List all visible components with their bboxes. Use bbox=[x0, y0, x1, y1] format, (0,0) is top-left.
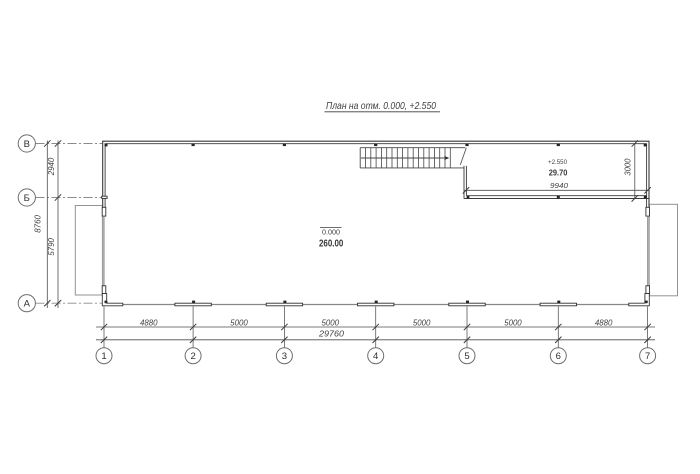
svg-text:4880: 4880 bbox=[140, 317, 158, 327]
svg-text:5000: 5000 bbox=[504, 317, 522, 327]
svg-text:А: А bbox=[24, 299, 31, 310]
svg-text:+2.550: +2.550 bbox=[548, 159, 568, 166]
svg-text:1: 1 bbox=[101, 351, 106, 362]
svg-text:4: 4 bbox=[373, 351, 378, 362]
svg-text:7: 7 bbox=[645, 351, 650, 362]
svg-text:29760: 29760 bbox=[318, 328, 344, 338]
svg-text:5000: 5000 bbox=[413, 317, 431, 327]
svg-text:4880: 4880 bbox=[595, 317, 613, 327]
svg-text:Б: Б bbox=[24, 193, 30, 204]
svg-text:29.70: 29.70 bbox=[549, 169, 568, 178]
svg-text:5000: 5000 bbox=[230, 317, 248, 327]
svg-text:5: 5 bbox=[464, 351, 469, 362]
svg-text:План на отм. 0.000, +2.550: План на отм. 0.000, +2.550 bbox=[326, 101, 436, 112]
svg-text:2: 2 bbox=[190, 351, 195, 362]
svg-text:В: В bbox=[24, 139, 30, 150]
svg-text:3: 3 bbox=[282, 351, 287, 362]
svg-text:9940: 9940 bbox=[550, 181, 569, 190]
svg-text:260.00: 260.00 bbox=[319, 238, 344, 249]
svg-text:5000: 5000 bbox=[322, 317, 340, 327]
svg-text:0.000: 0.000 bbox=[322, 227, 340, 236]
svg-text:3000: 3000 bbox=[623, 158, 633, 175]
svg-text:8760: 8760 bbox=[33, 215, 43, 233]
svg-text:6: 6 bbox=[556, 351, 561, 362]
